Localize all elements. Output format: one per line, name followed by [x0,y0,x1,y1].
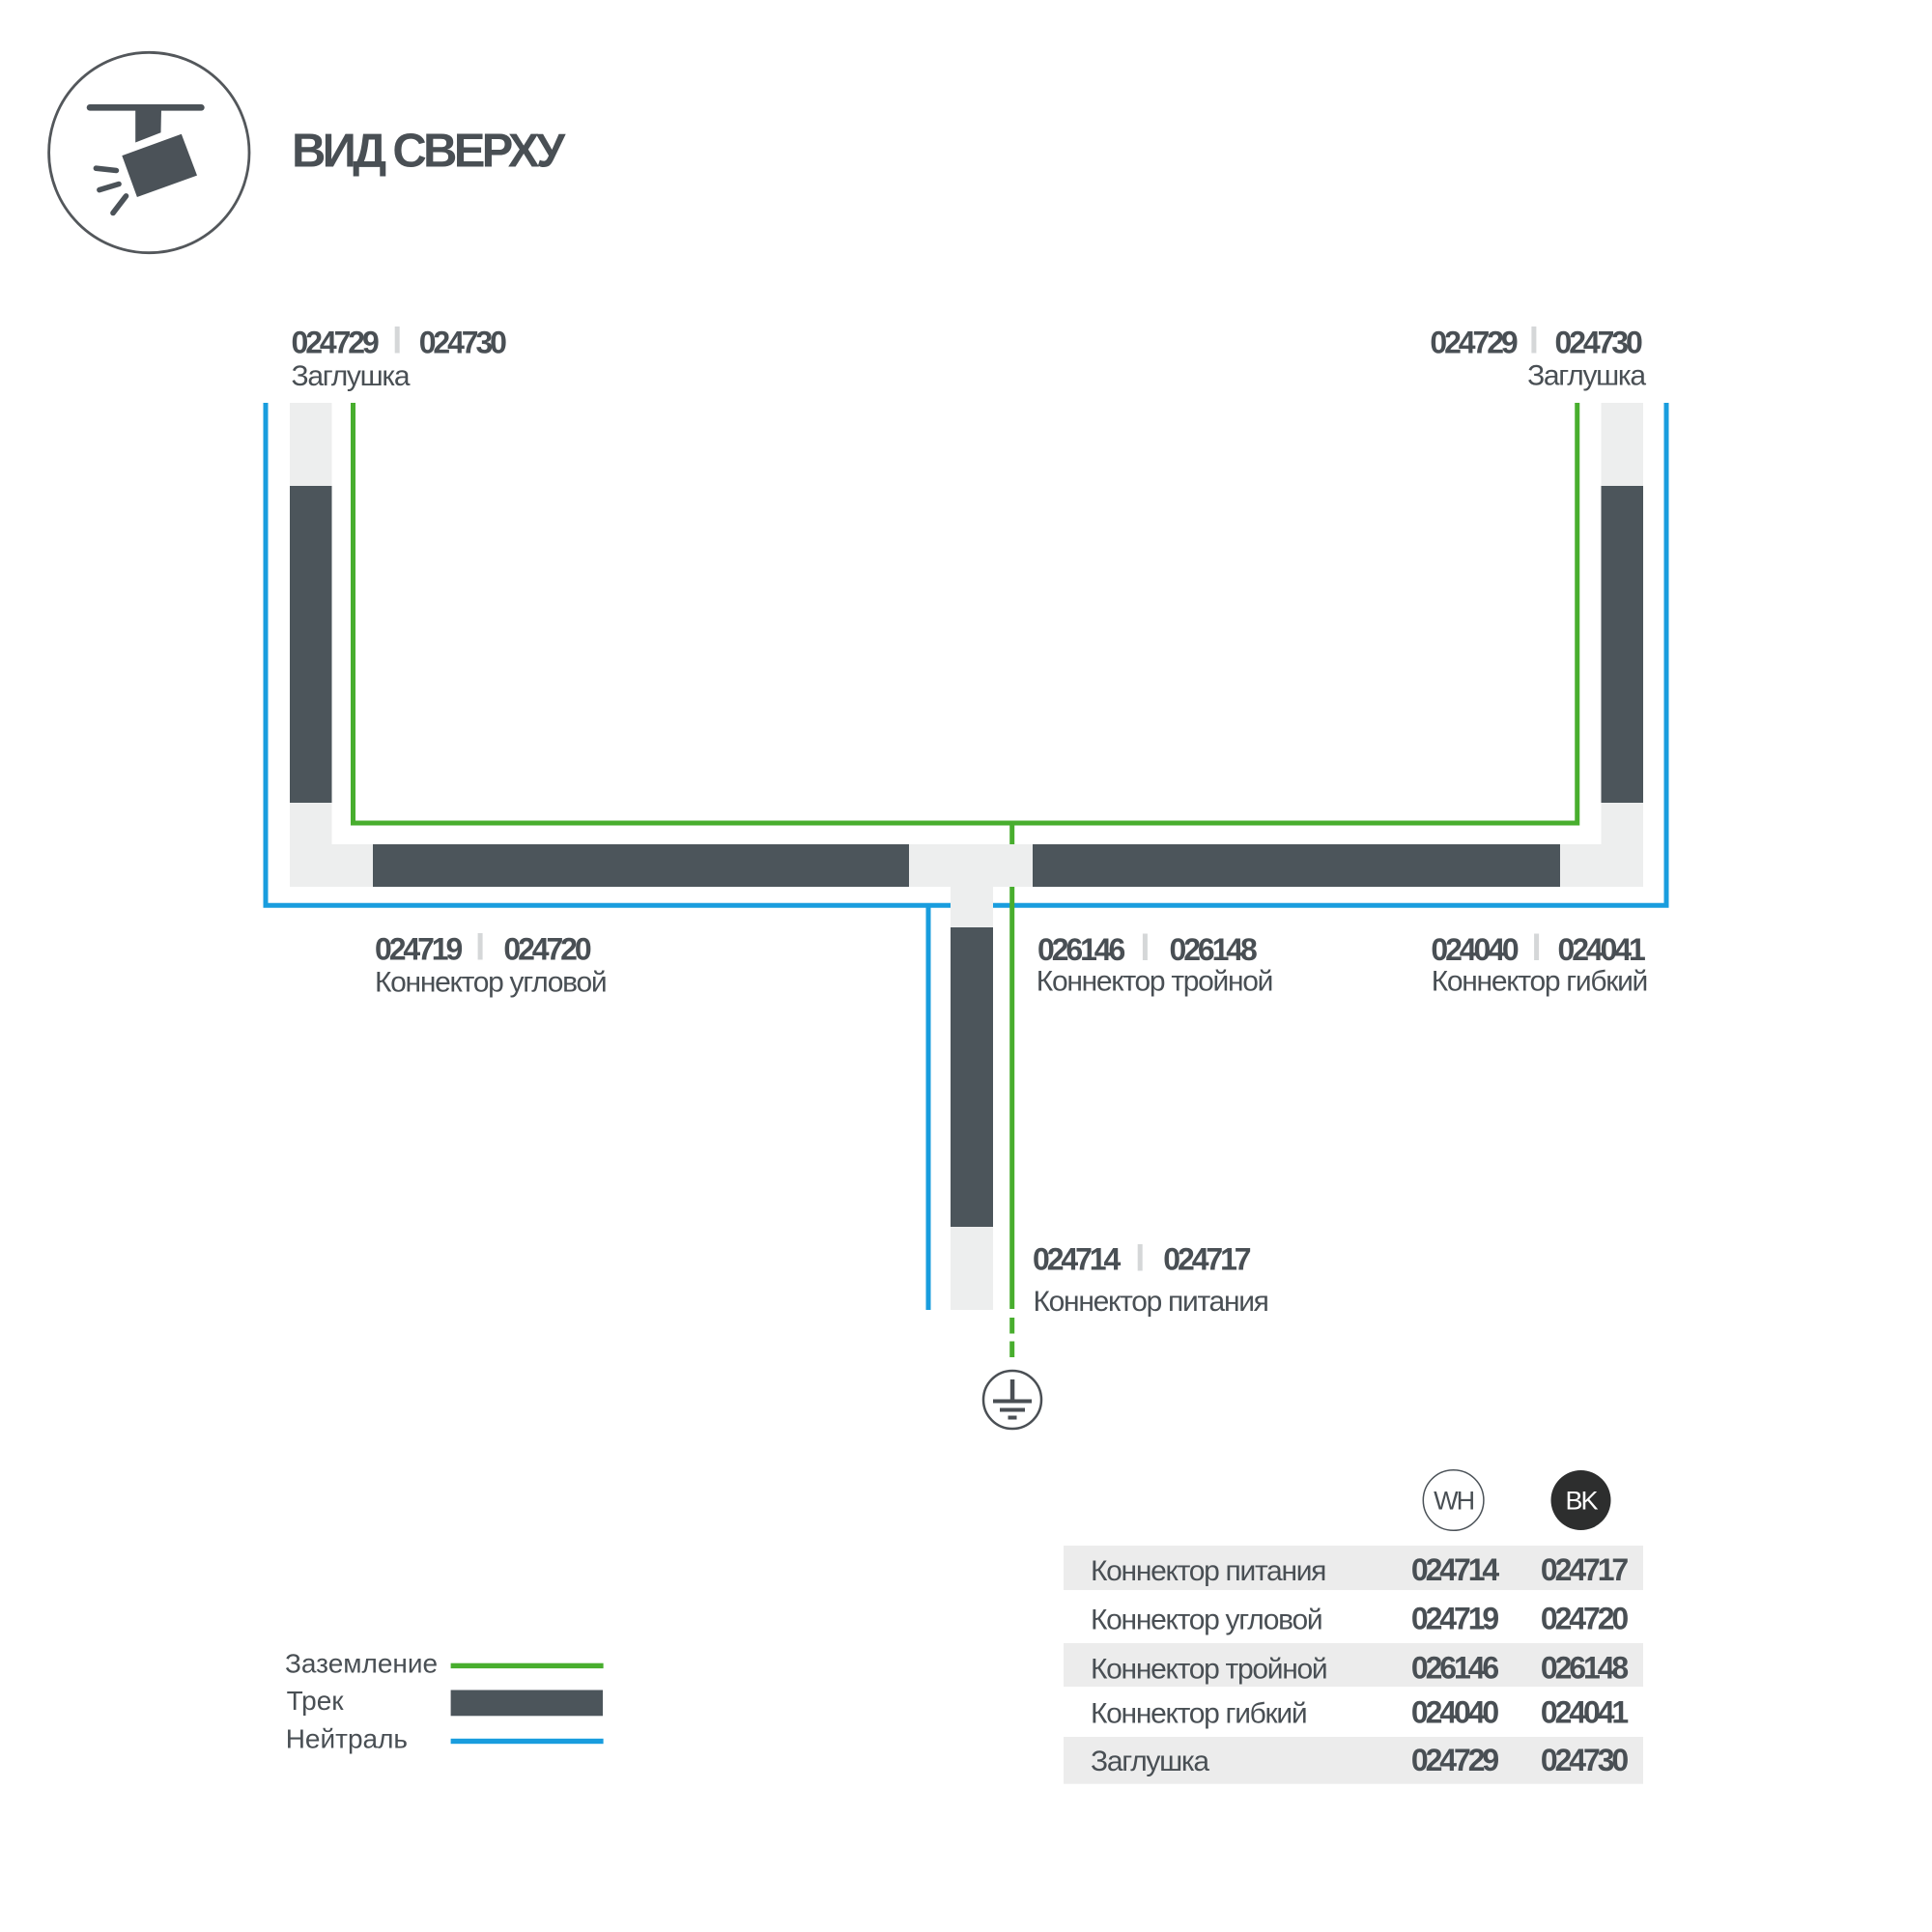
svg-text:BK: BK [1565,1487,1598,1516]
svg-text:Заземление: Заземление [285,1649,438,1679]
svg-text:024720: 024720 [503,932,590,967]
svg-text:024717: 024717 [1541,1552,1628,1587]
svg-text:Нейтраль: Нейтраль [286,1724,408,1754]
svg-text:024730: 024730 [419,326,506,360]
svg-text:024730: 024730 [1541,1743,1628,1777]
svg-text:026146: 026146 [1411,1651,1498,1686]
svg-text:Коннектор угловой: Коннектор угловой [375,967,606,999]
svg-text:Коннектор питания: Коннектор питания [1091,1555,1325,1587]
svg-text:024714: 024714 [1411,1552,1499,1587]
svg-text:WH: WH [1434,1487,1473,1516]
svg-text:024041: 024041 [1541,1695,1628,1730]
svg-text:Трек: Трек [287,1686,345,1716]
svg-text:Коннектор питания: Коннектор питания [1034,1286,1268,1318]
svg-text:Заглушка: Заглушка [1527,360,1646,392]
svg-text:026148: 026148 [1170,932,1257,967]
svg-text:024729: 024729 [1430,326,1517,360]
svg-text:026146: 026146 [1037,932,1124,967]
svg-text:024041: 024041 [1558,932,1645,967]
svg-text:ВИД СВЕРХУ: ВИД СВЕРХУ [292,126,566,178]
svg-text:024729: 024729 [292,326,379,360]
svg-text:026148: 026148 [1541,1651,1628,1686]
svg-text:024730: 024730 [1555,326,1642,360]
svg-text:Заглушка: Заглушка [1091,1746,1209,1777]
svg-text:Коннектор тройной: Коннектор тройной [1091,1654,1326,1686]
svg-text:Коннектор гибкий: Коннектор гибкий [1432,966,1647,998]
svg-text:024040: 024040 [1431,932,1518,967]
svg-text:Заглушка: Заглушка [292,360,411,392]
svg-text:024729: 024729 [1411,1743,1498,1777]
svg-text:Коннектор гибкий: Коннектор гибкий [1091,1698,1306,1730]
svg-text:Коннектор тройной: Коннектор тройной [1037,966,1272,998]
svg-text:024717: 024717 [1163,1242,1250,1277]
svg-text:Коннектор угловой: Коннектор угловой [1091,1605,1321,1636]
svg-text:024714: 024714 [1033,1242,1121,1277]
svg-text:024040: 024040 [1411,1695,1498,1730]
svg-text:024720: 024720 [1541,1602,1628,1636]
svg-text:024719: 024719 [1411,1602,1498,1636]
svg-text:024719: 024719 [375,932,462,967]
